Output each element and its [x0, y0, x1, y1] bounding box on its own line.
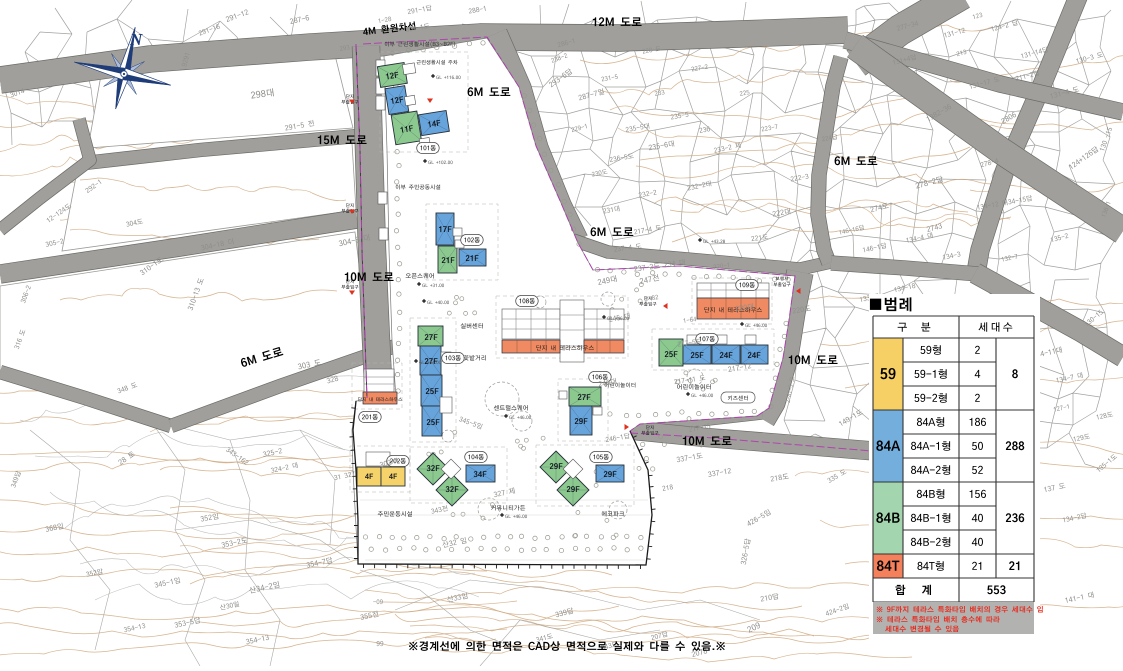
svg-text:N: N [129, 30, 143, 49]
